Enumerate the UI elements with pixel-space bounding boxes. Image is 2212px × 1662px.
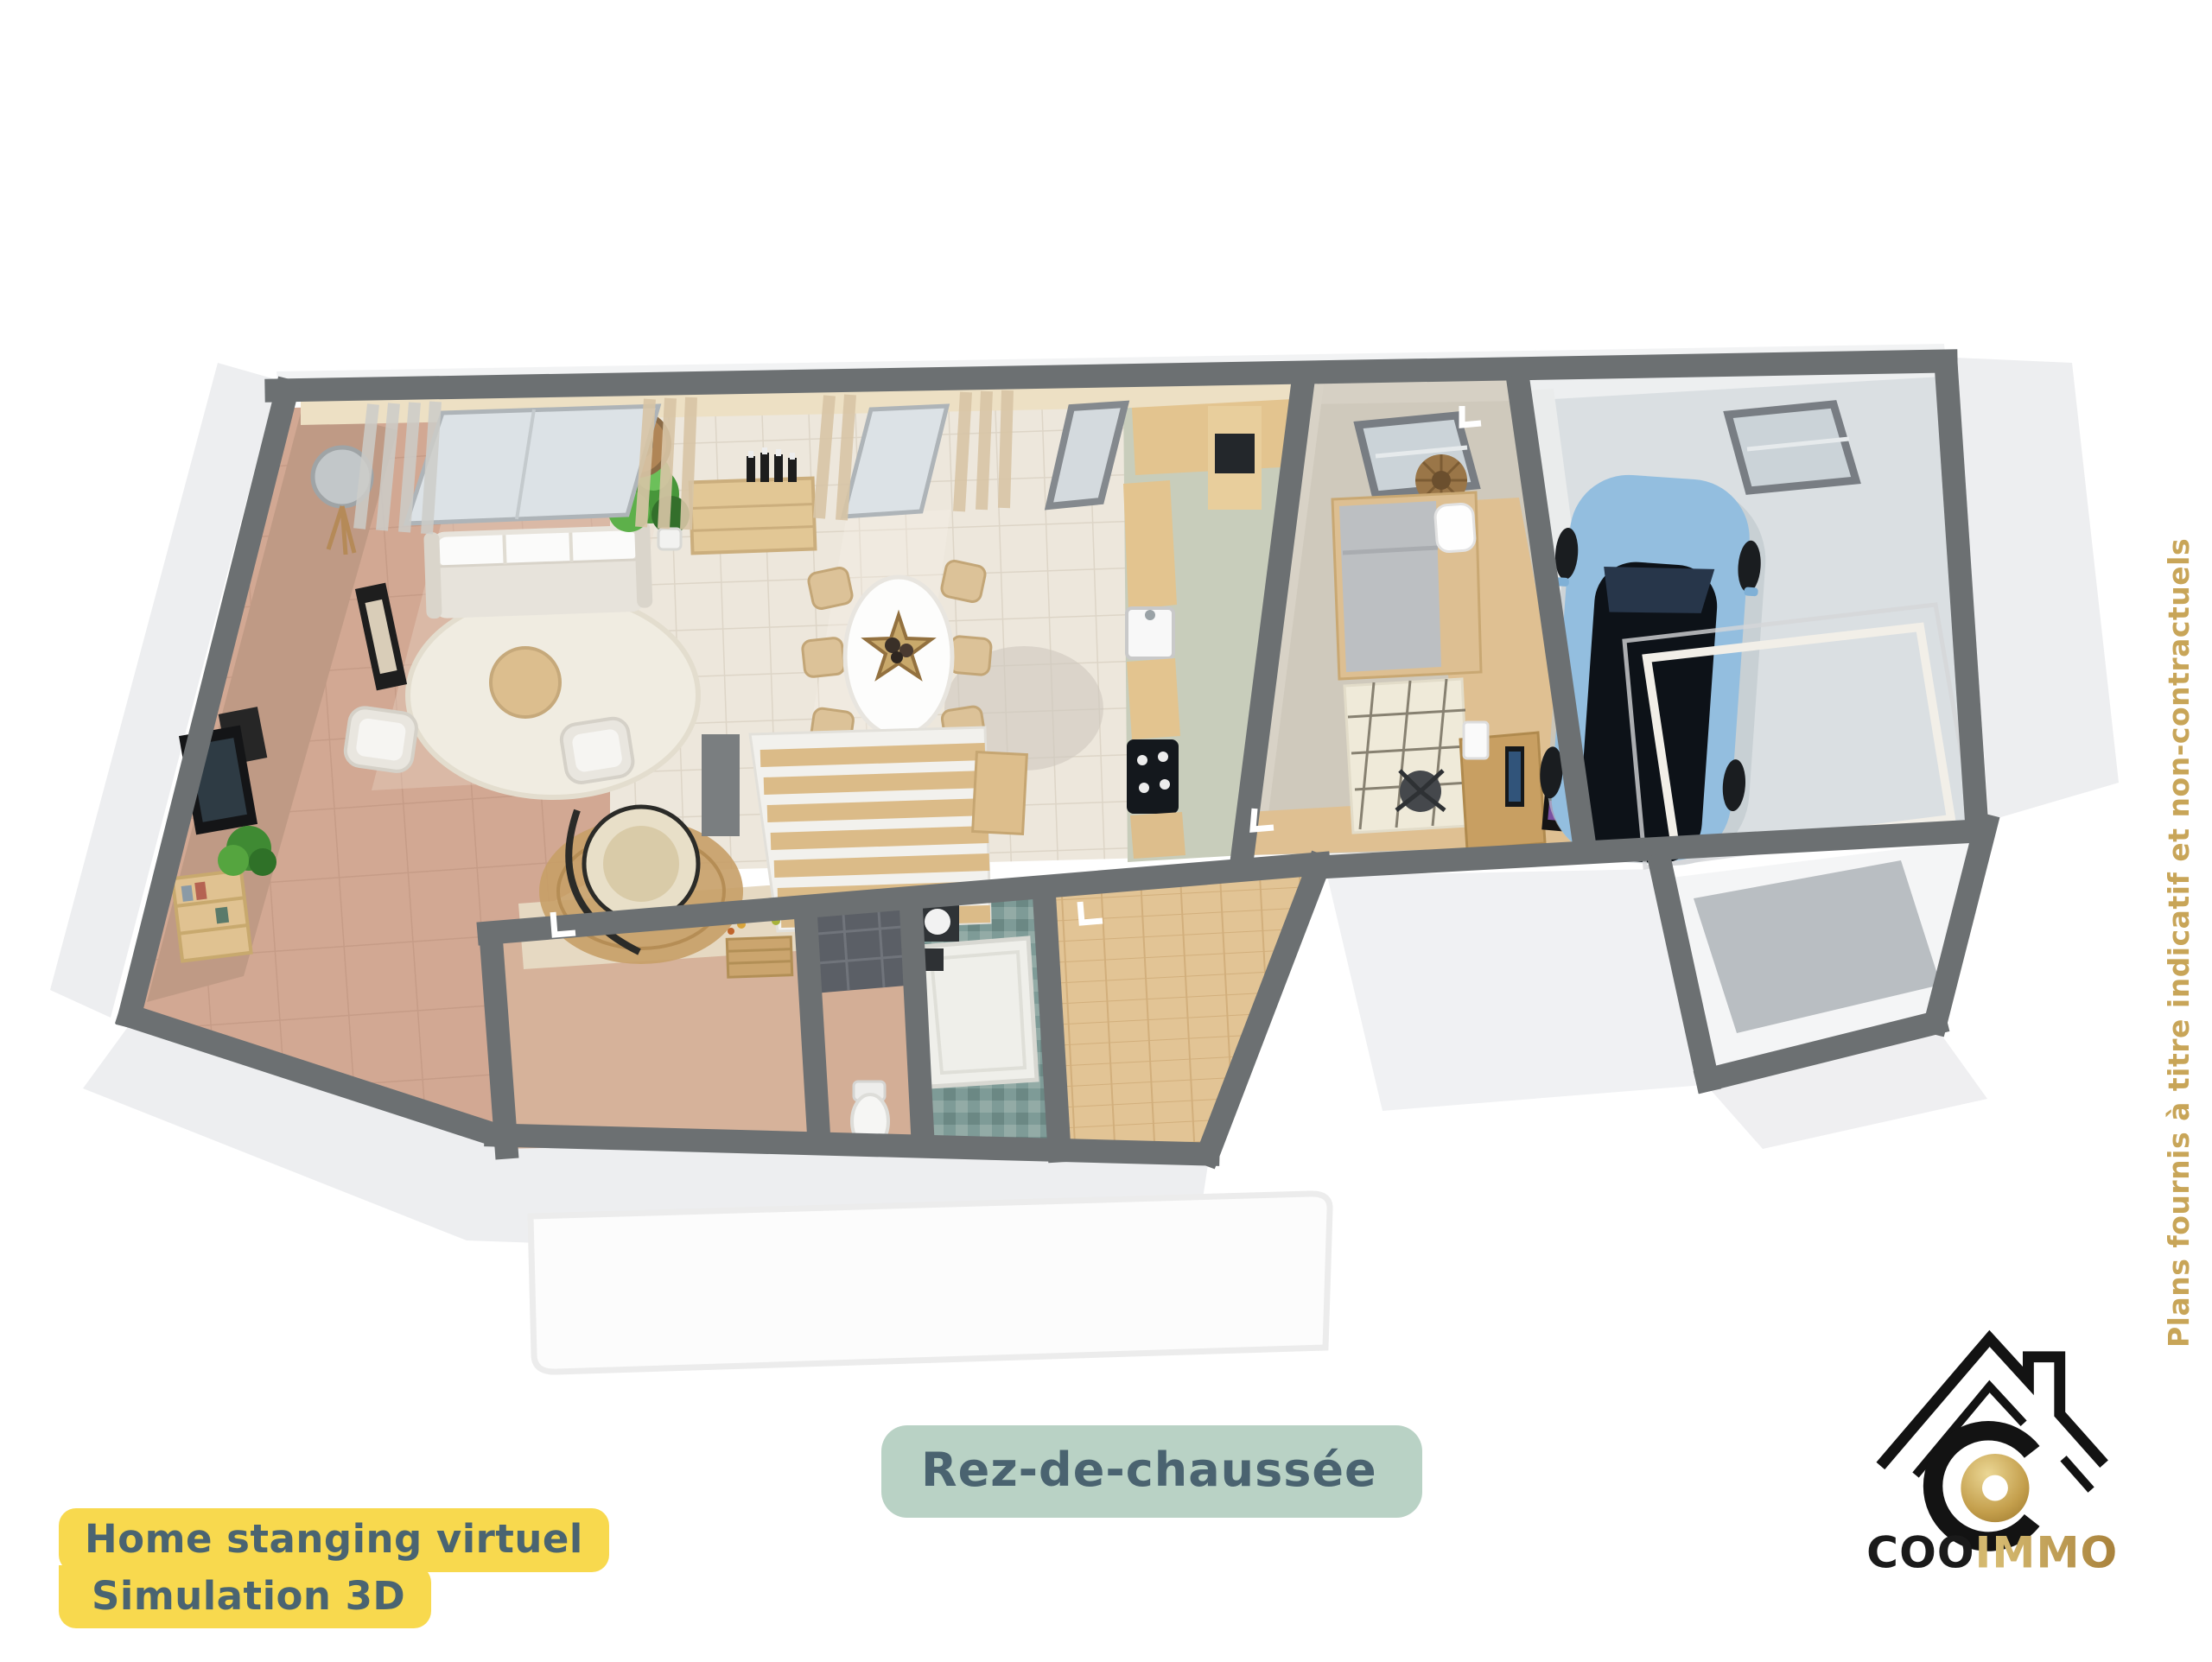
office-chair — [1396, 771, 1445, 812]
bench — [727, 937, 791, 978]
stair-wall-stub — [702, 734, 740, 836]
badge-line-2: Simulation 3D — [59, 1565, 431, 1629]
logo-house-icon — [1880, 1338, 2104, 1541]
logo-text-immo: IMMO — [1975, 1526, 2119, 1577]
wall-entry-wc — [805, 909, 819, 1142]
terrace — [531, 1194, 1330, 1372]
wall-living-entry — [491, 935, 506, 1147]
disclaimer-text: Plans fournis à titre indicatif et non-c… — [2162, 657, 2200, 1348]
sideboard — [690, 479, 816, 554]
hallway-floor — [1046, 867, 1317, 1151]
hall-sideboard — [973, 752, 1027, 834]
skylight-garage — [1728, 404, 1856, 491]
wall-wc-bath — [911, 900, 923, 1140]
kitchen-sink — [1127, 608, 1173, 658]
agency-logo: COOIMMO — [1866, 1320, 2126, 1588]
armchair-right — [559, 716, 635, 784]
diamond-rug — [1344, 679, 1469, 833]
cooktop — [1127, 739, 1179, 814]
sofa — [423, 521, 652, 618]
logo-text-coo: COO — [1866, 1526, 1974, 1577]
desk — [1460, 722, 1545, 850]
armchair-left — [343, 706, 418, 773]
logo-wordmark: COOIMMO — [1866, 1526, 2118, 1577]
bookcase — [172, 870, 251, 961]
page: Home stanging virtuel Simulation 3D Rez-… — [0, 0, 2212, 1659]
bed — [1332, 492, 1481, 679]
wall-bath-hall — [1044, 888, 1059, 1151]
shower — [919, 938, 1037, 1087]
coffee-table — [491, 648, 560, 717]
title-badges: Home stanging virtuel Simulation 3D — [59, 1508, 609, 1628]
badge-line-1: Home stanging virtuel — [59, 1508, 609, 1572]
floor-level-label: Rez-de-chaussée — [881, 1425, 1422, 1518]
disclaimer-note: Plans fournis à titre indicatif et non-c… — [2162, 657, 2200, 1348]
